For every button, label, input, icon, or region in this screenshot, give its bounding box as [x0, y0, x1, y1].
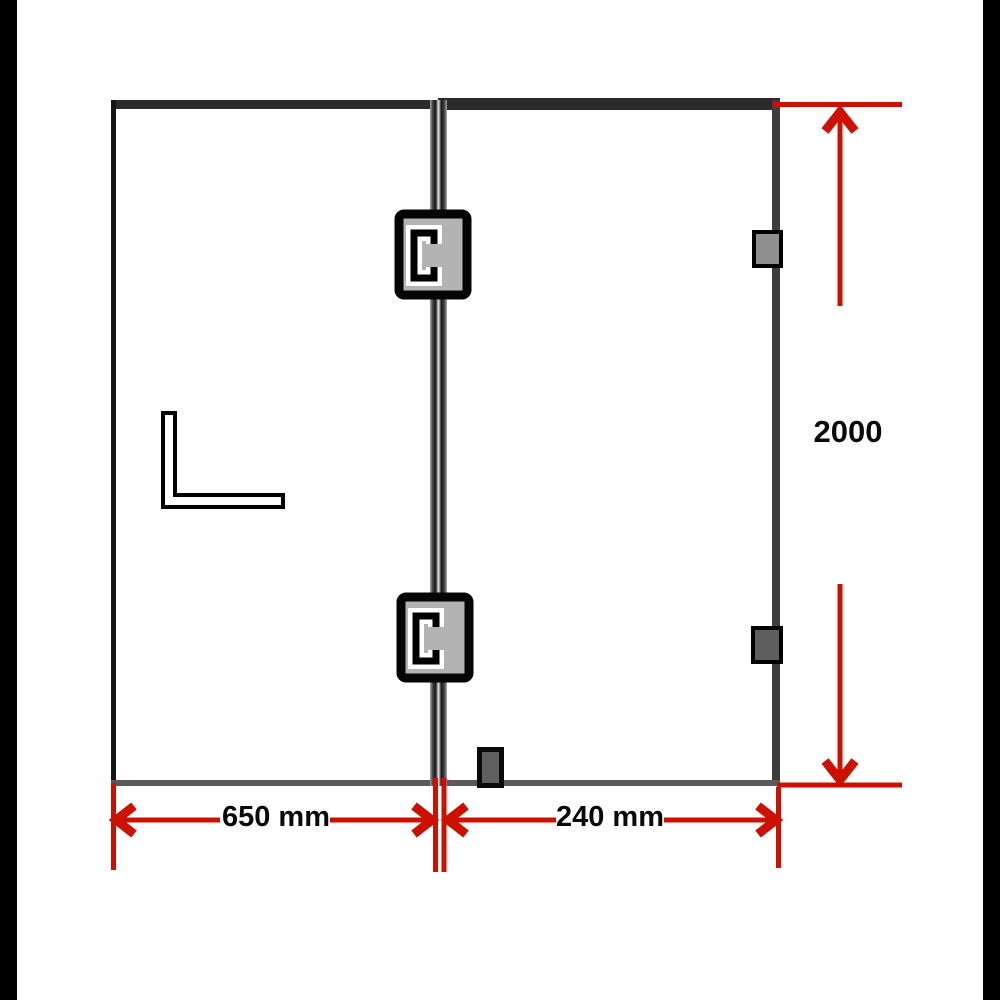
hinge-bottom-icon [396, 592, 474, 683]
dimension-annotations [0, 0, 1000, 1000]
hinge-top-icon [394, 209, 472, 300]
angle-bracket-icon [160, 410, 286, 510]
width240-arrowhead-left-icon [448, 806, 466, 834]
width240-arrowhead-right-icon [758, 806, 776, 834]
fixed-panel-top-edge [111, 100, 433, 109]
dimension-label-door-width: 240 mm [544, 801, 676, 833]
width650-arrowhead-right-icon [414, 806, 432, 834]
height-arrowhead-up-icon [825, 112, 855, 131]
door-stopper-icon [477, 747, 504, 788]
door-panel-top-edge [438, 98, 780, 110]
wall-bracket-top-icon [752, 230, 783, 268]
fixed-panel-left-edge [111, 100, 116, 786]
image-side-bar-right [983, 0, 1000, 1000]
width650-arrowhead-left-icon [116, 806, 134, 834]
wall-bracket-bottom-icon [751, 626, 783, 664]
height-arrowhead-down-icon [825, 761, 855, 780]
image-side-bar-left [0, 0, 17, 1000]
center-divider [430, 100, 447, 786]
fixed-panel-bottom-edge [111, 780, 437, 786]
dimension-label-height: 2000 [798, 416, 898, 448]
door-panel-right-edge [772, 100, 780, 786]
shower-screen-diagram: 650 mm 240 mm 2000 [0, 0, 1000, 1000]
dimension-label-left-panel-width: 650 mm [210, 801, 342, 833]
